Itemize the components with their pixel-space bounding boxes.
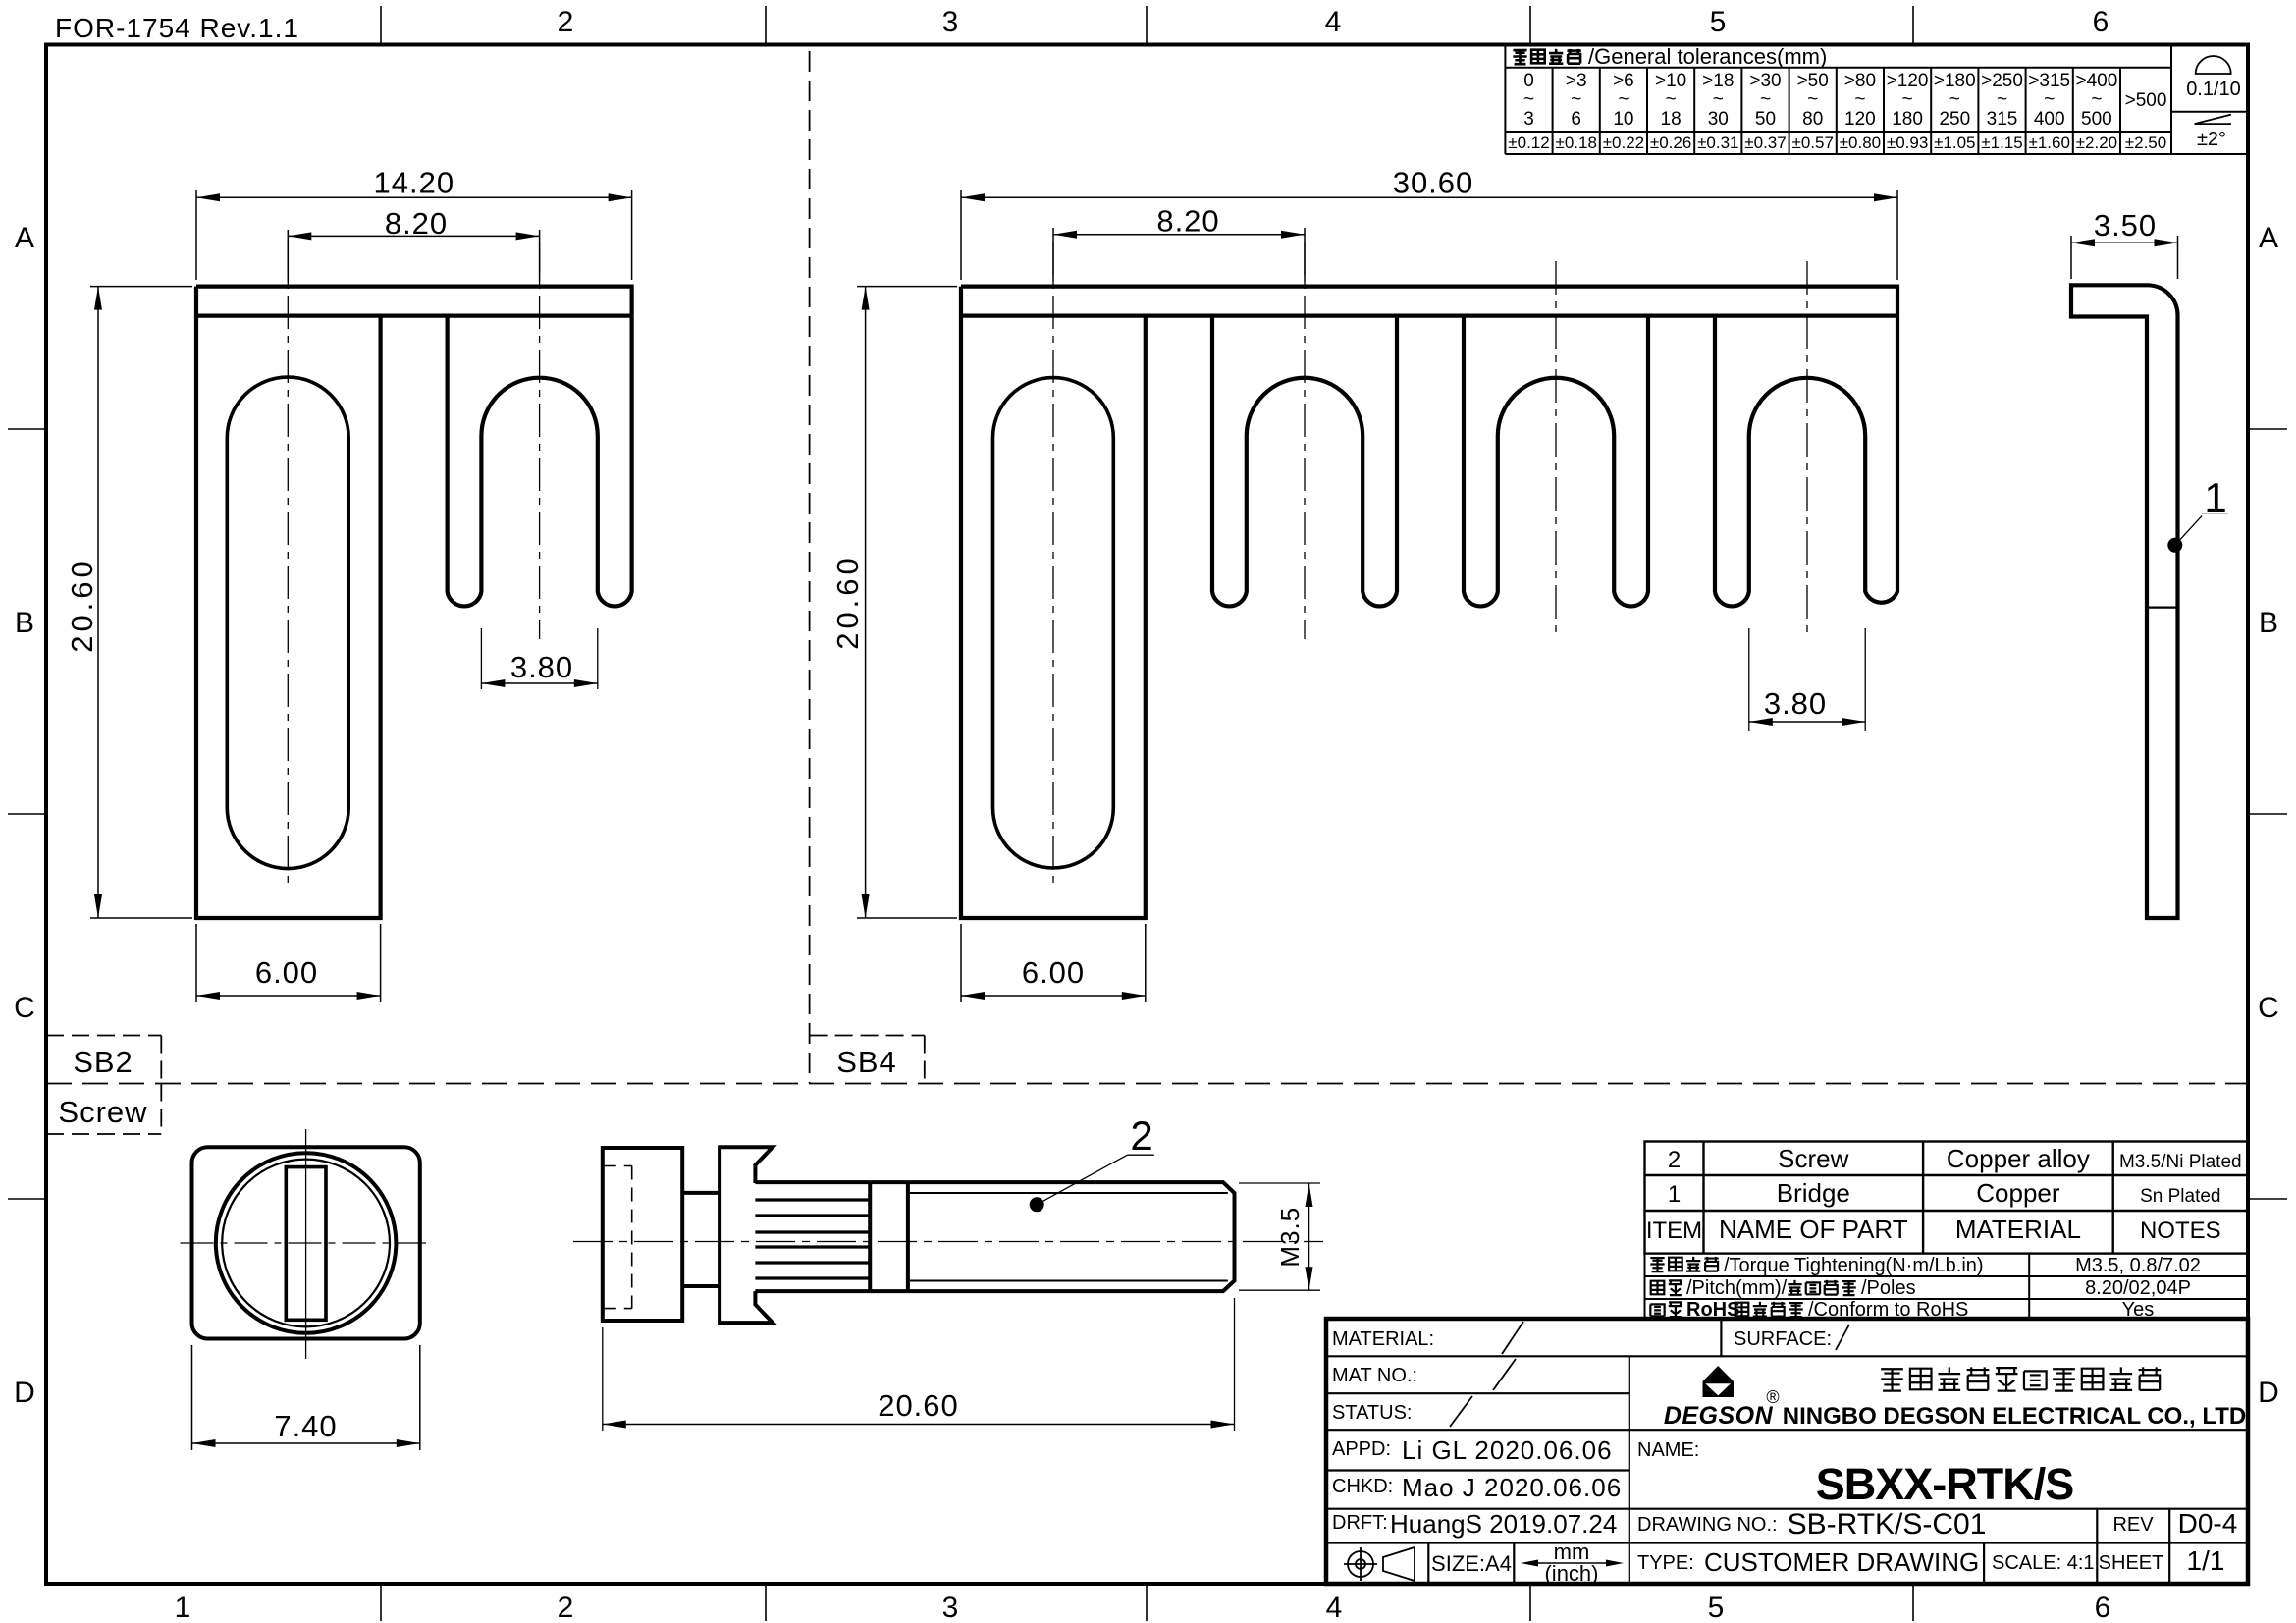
svg-text:3: 3 xyxy=(942,1592,959,1623)
svg-text:400: 400 xyxy=(2034,109,2065,130)
svg-text:120: 120 xyxy=(1844,109,1876,130)
svg-text:~: ~ xyxy=(1949,89,1960,110)
svg-text:±0.31: ±0.31 xyxy=(1697,134,1738,152)
svg-text:Screw: Screw xyxy=(58,1095,147,1129)
svg-text:>50: >50 xyxy=(1797,71,1829,91)
svg-text:>250: >250 xyxy=(1981,71,2023,91)
svg-text:~: ~ xyxy=(1618,89,1629,110)
svg-text:~: ~ xyxy=(2091,89,2102,110)
svg-text:NOTES: NOTES xyxy=(2140,1217,2221,1244)
svg-text:4: 4 xyxy=(1325,6,1342,38)
svg-text:~: ~ xyxy=(1997,89,2007,110)
svg-text:3: 3 xyxy=(942,6,959,38)
svg-text:4: 4 xyxy=(1326,1592,1343,1623)
svg-text:M3.5/Ni Plated: M3.5/Ni Plated xyxy=(2119,1152,2242,1172)
svg-text:~: ~ xyxy=(1666,89,1677,110)
svg-text:/Torque Tightening(N·m/Lb.in): /Torque Tightening(N·m/Lb.in) xyxy=(1724,1255,1984,1276)
svg-text:ITEM: ITEM xyxy=(1646,1217,1702,1244)
svg-text:±2.20: ±2.20 xyxy=(2076,134,2117,152)
svg-text:>18: >18 xyxy=(1702,71,1734,91)
svg-text:M3.5: M3.5 xyxy=(1275,1207,1305,1268)
svg-text:10: 10 xyxy=(1613,109,1633,130)
svg-text:NAME:: NAME: xyxy=(1637,1439,1699,1461)
svg-text:±0.57: ±0.57 xyxy=(1791,134,1833,152)
svg-text:6: 6 xyxy=(1571,109,1581,130)
svg-text:Sn Plated: Sn Plated xyxy=(2140,1186,2220,1207)
svg-text:8.20: 8.20 xyxy=(1156,204,1219,239)
svg-text:~: ~ xyxy=(1807,89,1818,110)
svg-text:~: ~ xyxy=(1713,89,1724,110)
svg-text:>180: >180 xyxy=(1934,71,1976,91)
svg-text:180: 180 xyxy=(1892,109,1923,130)
svg-text:NINGBO DEGSON ELECTRICAL CO.,: NINGBO DEGSON ELECTRICAL CO., LTD xyxy=(1783,1403,2246,1430)
svg-text:0: 0 xyxy=(1523,71,1534,91)
svg-text:20.60: 20.60 xyxy=(878,1388,959,1423)
svg-text:TYPE:: TYPE: xyxy=(1637,1552,1694,1574)
svg-text:30.60: 30.60 xyxy=(1393,166,1474,200)
svg-text:~: ~ xyxy=(1571,89,1581,110)
svg-text:±0.93: ±0.93 xyxy=(1887,134,1928,152)
svg-text:±0.18: ±0.18 xyxy=(1555,134,1596,152)
svg-text:7.40: 7.40 xyxy=(274,1409,337,1443)
svg-text:±0.22: ±0.22 xyxy=(1603,134,1644,152)
svg-text:APPD:: APPD: xyxy=(1332,1438,1391,1460)
svg-text:±0.26: ±0.26 xyxy=(1650,134,1691,152)
svg-text:±2.50: ±2.50 xyxy=(2125,134,2166,152)
svg-text:80: 80 xyxy=(1802,109,1823,130)
svg-text:>400: >400 xyxy=(2076,71,2118,91)
svg-text:C: C xyxy=(2258,992,2279,1024)
svg-text:1: 1 xyxy=(1668,1181,1681,1208)
svg-text:M3.5, 0.8/7.02: M3.5, 0.8/7.02 xyxy=(2075,1255,2201,1276)
svg-text:2: 2 xyxy=(558,1592,574,1623)
svg-text:2: 2 xyxy=(1668,1147,1681,1173)
svg-text:®: ® xyxy=(1766,1387,1779,1407)
svg-text:6: 6 xyxy=(2093,6,2109,38)
svg-text:8.20: 8.20 xyxy=(385,206,448,241)
svg-text:SIZE:A4: SIZE:A4 xyxy=(1431,1551,1512,1576)
svg-text:Li GL 2020.06.06: Li GL 2020.06.06 xyxy=(1402,1435,1613,1465)
svg-text:CHKD:: CHKD: xyxy=(1332,1476,1393,1497)
svg-text:14.20: 14.20 xyxy=(374,166,455,200)
svg-text:50: 50 xyxy=(1755,109,1776,130)
svg-text:MATERIAL:: MATERIAL: xyxy=(1332,1328,1434,1350)
svg-text:~: ~ xyxy=(2044,89,2055,110)
svg-text:>30: >30 xyxy=(1749,71,1781,91)
svg-text:Screw: Screw xyxy=(1778,1144,1848,1173)
svg-text:NAME OF PART: NAME OF PART xyxy=(1719,1215,1908,1244)
svg-text:±0.80: ±0.80 xyxy=(1840,134,1881,152)
svg-text:>6: >6 xyxy=(1613,71,1634,91)
svg-text:/Pitch(mm)/: /Pitch(mm)/ xyxy=(1686,1277,1788,1299)
svg-text:>120: >120 xyxy=(1887,71,1929,91)
svg-text:DEGSON: DEGSON xyxy=(1664,1402,1774,1430)
svg-text:/General tolerances(mm): /General tolerances(mm) xyxy=(1588,44,1827,69)
svg-text:>3: >3 xyxy=(1566,71,1587,91)
svg-text:CUSTOMER DRAWING: CUSTOMER DRAWING xyxy=(1704,1547,1979,1577)
svg-text:3.80: 3.80 xyxy=(510,650,573,684)
svg-text:D0-4: D0-4 xyxy=(2178,1508,2238,1539)
svg-text:SB2: SB2 xyxy=(73,1045,133,1079)
svg-text:250: 250 xyxy=(1939,109,1970,130)
svg-text:A: A xyxy=(2259,222,2278,254)
svg-text:D: D xyxy=(2258,1377,2279,1409)
svg-text:SHEET: SHEET xyxy=(2099,1552,2164,1574)
svg-text:±0.12: ±0.12 xyxy=(1508,134,1549,152)
svg-text:SB-RTK/S-C01: SB-RTK/S-C01 xyxy=(1788,1508,1987,1541)
svg-text:SCALE: 4:1: SCALE: 4:1 xyxy=(1992,1552,2095,1574)
svg-text:>10: >10 xyxy=(1655,71,1686,91)
svg-text:(inch): (inch) xyxy=(1544,1561,1598,1586)
svg-text:3: 3 xyxy=(1523,109,1534,130)
svg-text:SB4: SB4 xyxy=(836,1045,897,1079)
svg-text:DRFT:: DRFT: xyxy=(1332,1512,1388,1534)
svg-text:±1.15: ±1.15 xyxy=(1981,134,2022,152)
svg-text:FOR-1754 Rev.1.1: FOR-1754 Rev.1.1 xyxy=(55,13,299,43)
svg-text:1/1: 1/1 xyxy=(2187,1545,2225,1576)
svg-text:6.00: 6.00 xyxy=(1022,955,1085,990)
svg-text:±1.60: ±1.60 xyxy=(2028,134,2069,152)
svg-text:HuangS 2019.07.24: HuangS 2019.07.24 xyxy=(1390,1509,1617,1539)
svg-text:30: 30 xyxy=(1708,109,1729,130)
svg-text:Copper alloy: Copper alloy xyxy=(1947,1144,2090,1173)
svg-text:2: 2 xyxy=(558,6,574,38)
svg-text:2: 2 xyxy=(1130,1112,1152,1159)
svg-text:SBXX-RTK/S: SBXX-RTK/S xyxy=(1816,1459,2074,1509)
svg-text:/Poles: /Poles xyxy=(1861,1277,1916,1299)
svg-text:MAT NO.:: MAT NO.: xyxy=(1332,1365,1417,1386)
svg-text:5: 5 xyxy=(1710,6,1727,38)
svg-text:REV: REV xyxy=(2112,1514,2154,1536)
svg-text:500: 500 xyxy=(2081,109,2112,130)
svg-text:Mao J 2020.06.06: Mao J 2020.06.06 xyxy=(1402,1473,1622,1502)
svg-text:D: D xyxy=(14,1377,35,1409)
svg-text:STATUS:: STATUS: xyxy=(1332,1402,1412,1424)
svg-text:B: B xyxy=(15,607,34,639)
svg-text:~: ~ xyxy=(1854,89,1865,110)
svg-text:8.20/02,04P: 8.20/02,04P xyxy=(2085,1277,2191,1299)
svg-text:MATERIAL: MATERIAL xyxy=(1955,1215,2081,1244)
svg-text:SURFACE:: SURFACE: xyxy=(1734,1328,1832,1350)
svg-text:±2°: ±2° xyxy=(2197,129,2226,150)
svg-text:±0.37: ±0.37 xyxy=(1744,134,1786,152)
svg-text:6: 6 xyxy=(2095,1592,2111,1623)
svg-text:>315: >315 xyxy=(2028,71,2070,91)
svg-text:DRAWING NO.:: DRAWING NO.: xyxy=(1637,1514,1778,1536)
svg-text:1: 1 xyxy=(175,1592,191,1623)
svg-text:6.00: 6.00 xyxy=(255,955,318,990)
svg-text:Copper: Copper xyxy=(1976,1178,2060,1208)
svg-text:B: B xyxy=(2259,607,2278,639)
svg-text:20.60: 20.60 xyxy=(65,557,99,653)
svg-text:3.80: 3.80 xyxy=(1764,686,1827,721)
svg-text:>80: >80 xyxy=(1844,71,1876,91)
svg-text:20.60: 20.60 xyxy=(830,554,865,650)
svg-text:18: 18 xyxy=(1661,109,1682,130)
svg-text:Bridge: Bridge xyxy=(1777,1178,1850,1208)
svg-text:315: 315 xyxy=(1987,109,2018,130)
svg-text:~: ~ xyxy=(1523,89,1534,110)
svg-text:5: 5 xyxy=(1708,1592,1725,1623)
svg-text:±1.05: ±1.05 xyxy=(1934,134,1975,152)
svg-text:0.1/10: 0.1/10 xyxy=(2186,79,2241,100)
svg-text:>500: >500 xyxy=(2125,90,2167,111)
svg-text:1: 1 xyxy=(2204,474,2226,520)
svg-text:A: A xyxy=(15,222,34,254)
svg-text:~: ~ xyxy=(1902,89,1913,110)
svg-text:3.50: 3.50 xyxy=(2094,208,2157,243)
svg-text:C: C xyxy=(14,992,35,1024)
svg-text:~: ~ xyxy=(1760,89,1771,110)
